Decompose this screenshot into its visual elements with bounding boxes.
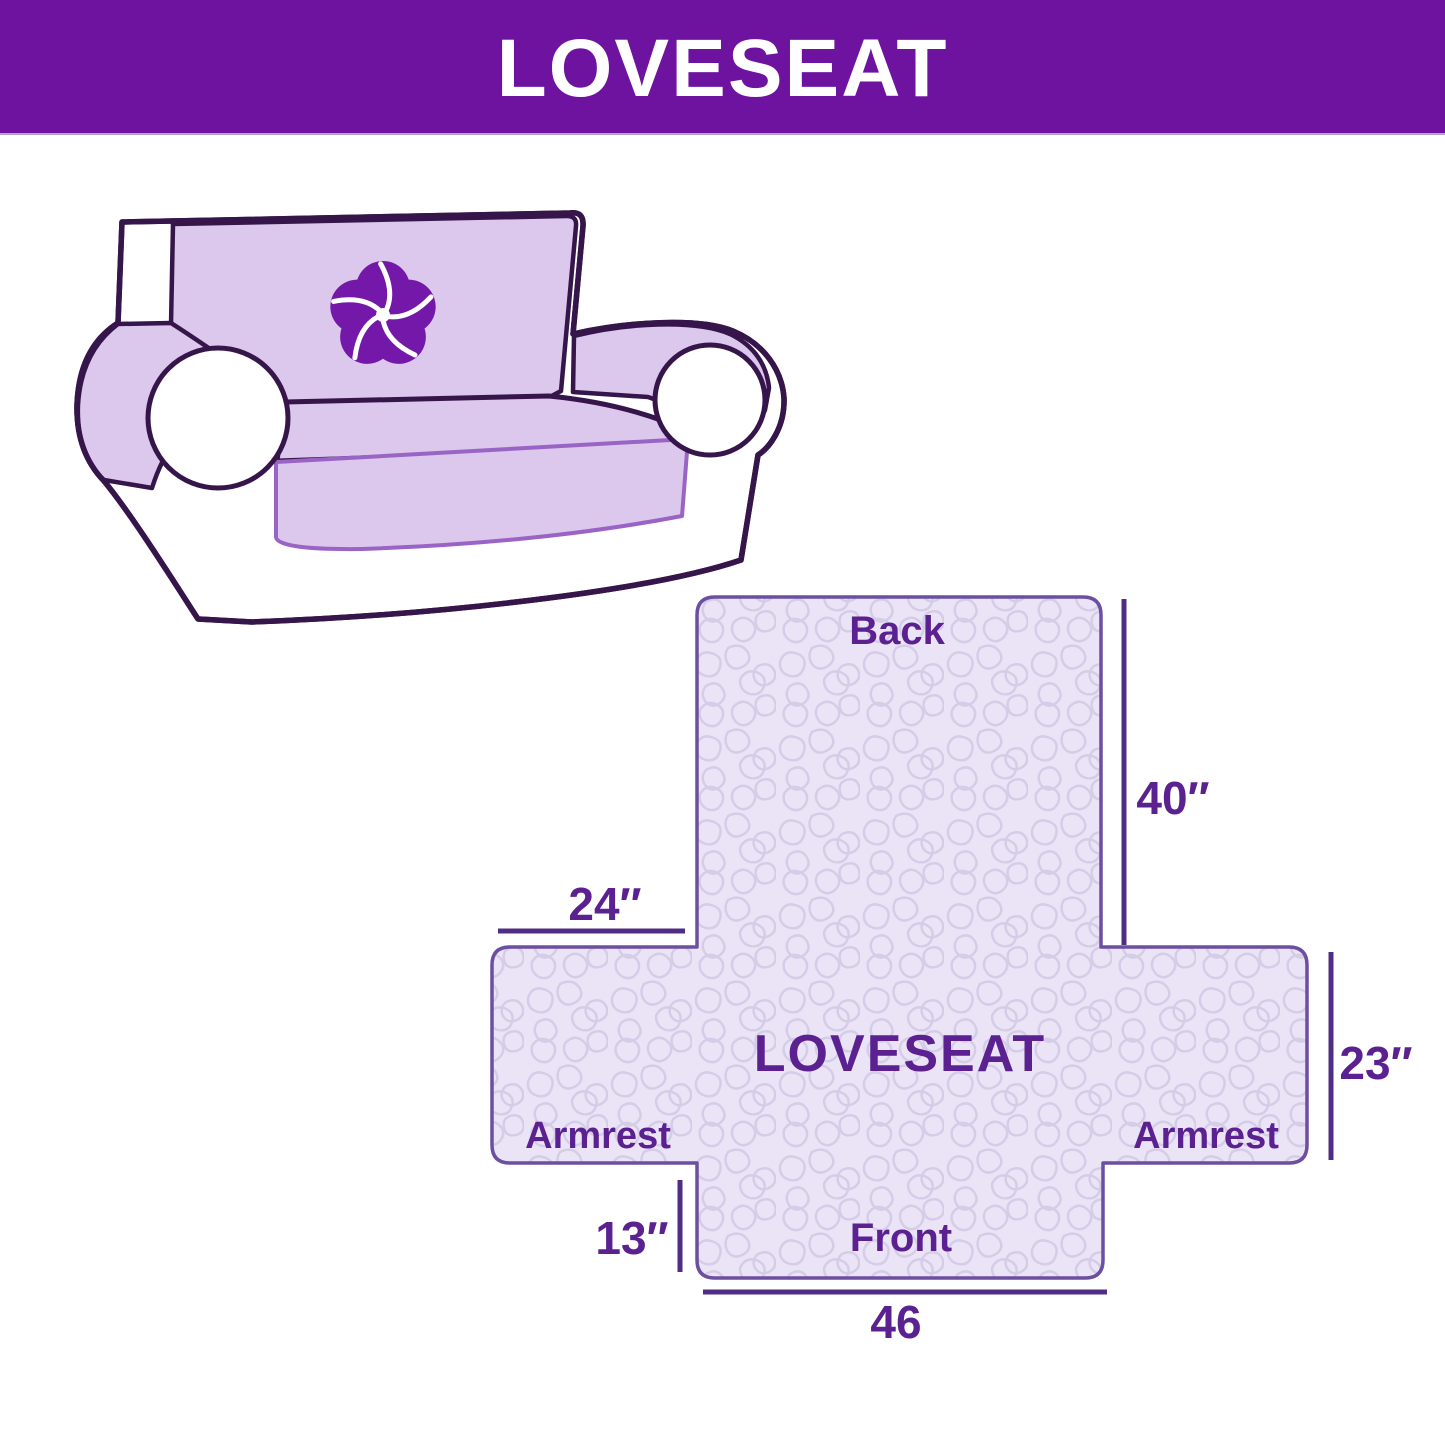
sofa-left-arm-roll (148, 348, 288, 488)
back-panel-label: Back (849, 609, 945, 653)
front-drop-value: 13″ (595, 1212, 668, 1264)
center-loveseat-label: LOVESEAT (754, 1025, 1046, 1083)
front-width-value: 46 (870, 1296, 921, 1348)
back-width-value: 24″ (568, 878, 641, 930)
back-height-value: 40″ (1136, 772, 1209, 824)
armrest-left-label: Armrest (525, 1115, 671, 1157)
cover-shape (492, 597, 1307, 1278)
armrest-height-value: 23″ (1339, 1037, 1412, 1089)
header-banner: LOVESEAT (0, 0, 1445, 135)
dimension-diagram: Back LOVESEAT Armrest Armrest Front 40″ … (440, 560, 1445, 1400)
armrest-right-label: Armrest (1133, 1115, 1279, 1157)
sofa-right-arm-roll (655, 345, 765, 455)
header-title: LOVESEAT (497, 28, 949, 110)
front-panel-label: Front (850, 1216, 952, 1260)
